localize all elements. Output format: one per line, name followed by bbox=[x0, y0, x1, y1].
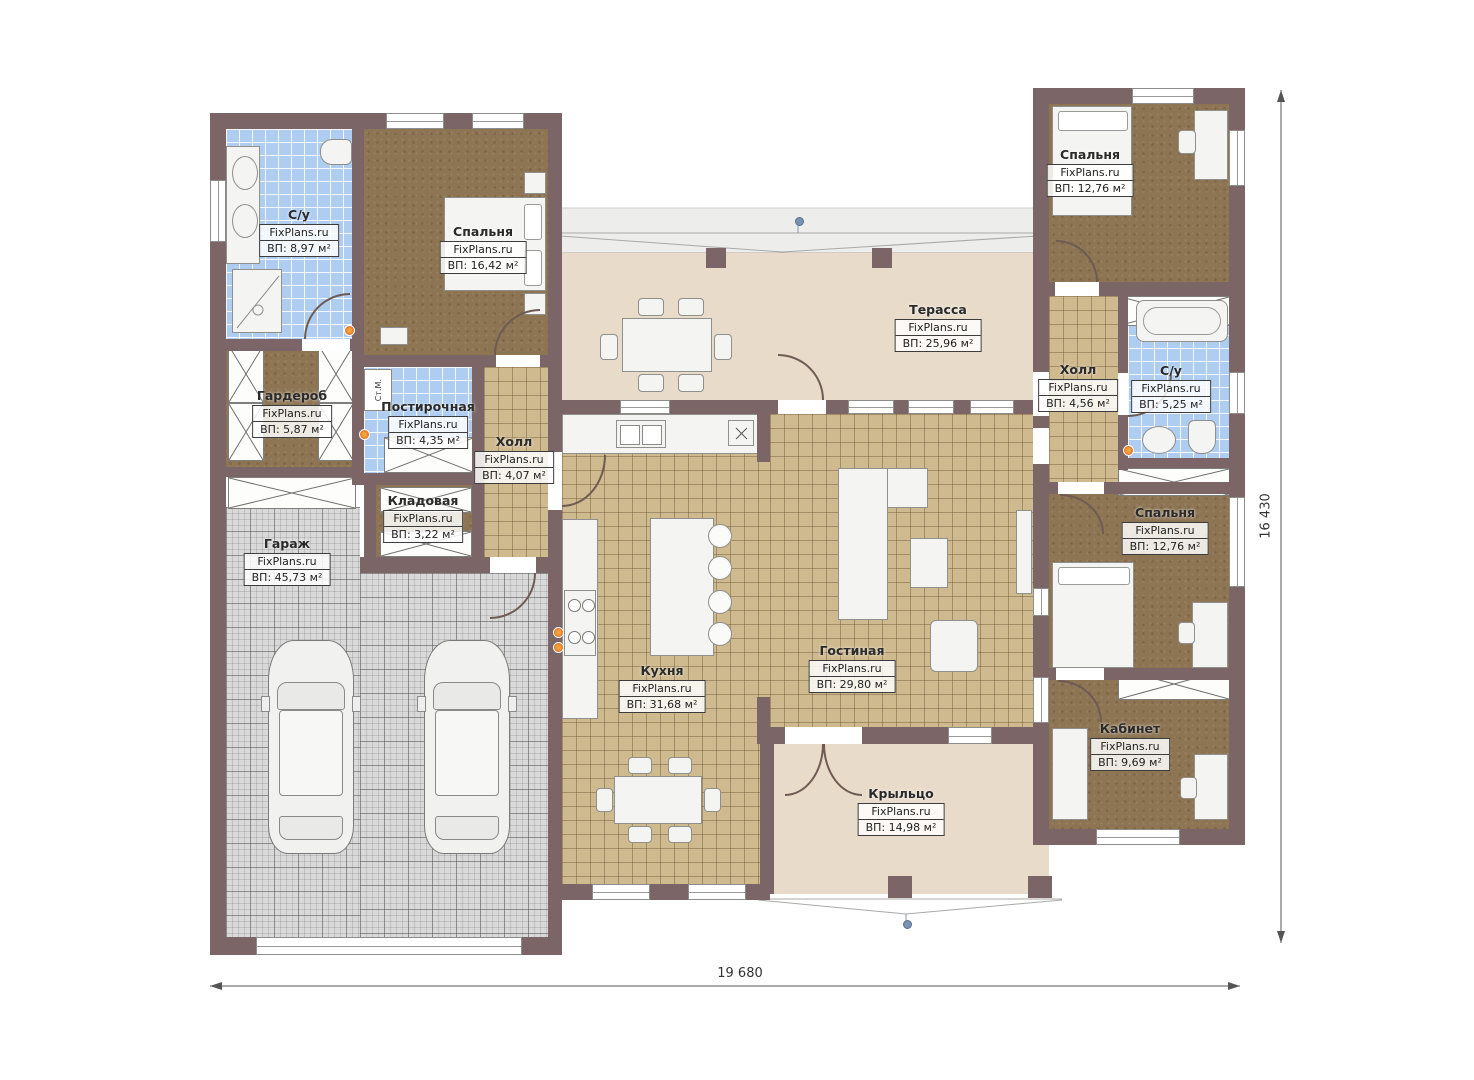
watermark: FixPlans.ru bbox=[384, 511, 462, 527]
room-name: Гараж bbox=[244, 536, 331, 551]
desk bbox=[1194, 110, 1228, 180]
window bbox=[1229, 130, 1245, 186]
desk bbox=[1192, 602, 1228, 668]
room-name: Гостиная bbox=[809, 643, 896, 658]
room-name: Кабинет bbox=[1090, 721, 1170, 736]
bar-stool bbox=[708, 556, 732, 580]
bar-stool bbox=[708, 524, 732, 548]
closet-shelving bbox=[228, 477, 356, 509]
door-opening bbox=[490, 557, 536, 573]
wall-light bbox=[359, 429, 370, 440]
wall bbox=[352, 129, 364, 351]
watermark: FixPlans.ru bbox=[1091, 739, 1169, 755]
watermark: FixPlans.ru bbox=[260, 225, 338, 241]
door-opening bbox=[778, 400, 826, 414]
dresser bbox=[380, 327, 408, 345]
room-name: Кладовая bbox=[383, 493, 463, 508]
room-area: ВП: 9,69 м² bbox=[1091, 755, 1169, 770]
room-area: ВП: 16,42 м² bbox=[441, 258, 526, 273]
wall bbox=[760, 744, 774, 894]
room-label-office: Кабинет FixPlans.ruВП: 9,69 м² bbox=[1090, 721, 1170, 771]
room-area: ВП: 14,98 м² bbox=[859, 820, 944, 835]
chair bbox=[638, 298, 664, 316]
watermark: FixPlans.ru bbox=[1123, 523, 1208, 539]
pillow bbox=[524, 250, 542, 286]
room-label-porch: Крыльцо FixPlans.ruВП: 14,98 м² bbox=[858, 786, 945, 836]
chair bbox=[678, 374, 704, 392]
room-area: ВП: 4,56 м² bbox=[1039, 396, 1117, 411]
chair bbox=[1178, 622, 1195, 644]
room-label-wardrobe: Гардероб FixPlans.ruВП: 5,87 м² bbox=[252, 388, 332, 438]
door-opening bbox=[1033, 428, 1049, 464]
bathtub bbox=[1136, 300, 1228, 342]
bar-stool bbox=[708, 590, 732, 614]
watermark: FixPlans.ru bbox=[389, 417, 467, 433]
room-label-hall-right: Холл FixPlans.ruВП: 4,56 м² bbox=[1038, 362, 1118, 412]
window bbox=[908, 400, 954, 414]
window bbox=[970, 400, 1014, 414]
wall-light bbox=[553, 627, 564, 638]
watermark: FixPlans.ru bbox=[1132, 381, 1210, 397]
window bbox=[592, 884, 650, 900]
roof-post bbox=[872, 248, 892, 268]
dining-table bbox=[614, 776, 702, 824]
window bbox=[1033, 588, 1049, 616]
room-label-laundry: Постирочная FixPlans.ruВП: 4,35 м² bbox=[381, 399, 475, 449]
room-area: ВП: 5,25 м² bbox=[1132, 397, 1210, 412]
pillow bbox=[1058, 567, 1130, 585]
room-label-living-room: Гостиная FixPlans.ruВП: 29,80 м² bbox=[809, 643, 896, 693]
chair bbox=[714, 334, 732, 360]
watermark: FixPlans.ru bbox=[896, 320, 981, 336]
dimension-width-label: 19 680 bbox=[717, 966, 763, 981]
wall-light bbox=[344, 325, 355, 336]
room-name: Спальня bbox=[1122, 505, 1209, 520]
room-name: Постирочная bbox=[381, 399, 475, 414]
window bbox=[1132, 88, 1194, 104]
wall bbox=[1229, 88, 1245, 845]
chair bbox=[628, 826, 652, 843]
sink bbox=[1142, 426, 1176, 454]
wall bbox=[1033, 88, 1049, 845]
window bbox=[688, 884, 746, 900]
window bbox=[848, 400, 894, 414]
door-opening bbox=[496, 355, 540, 367]
chair bbox=[1180, 777, 1197, 799]
porch-column bbox=[888, 876, 912, 898]
room-name: Спальня bbox=[440, 224, 527, 239]
room-area: ВП: 45,73 м² bbox=[245, 570, 330, 585]
room-label-bathroom-right: С/у FixPlans.ruВП: 5,25 м² bbox=[1131, 363, 1211, 413]
wall bbox=[364, 473, 472, 485]
watermark: FixPlans.ru bbox=[810, 661, 895, 677]
door-opening bbox=[1118, 373, 1128, 415]
window bbox=[1229, 497, 1245, 587]
shower bbox=[232, 269, 282, 333]
window bbox=[1033, 677, 1049, 723]
door-opening bbox=[1058, 482, 1104, 494]
watermark: FixPlans.ru bbox=[620, 681, 705, 697]
room-label-terrace: Терасса FixPlans.ruВП: 25,96 м² bbox=[895, 302, 982, 352]
room-area: ВП: 12,76 м² bbox=[1123, 539, 1208, 554]
chair bbox=[1178, 130, 1196, 154]
door-opening bbox=[785, 727, 862, 744]
room-label-bedroom-left: Спальня FixPlans.ruВП: 16,42 м² bbox=[440, 224, 527, 274]
armchair bbox=[930, 620, 978, 672]
chair bbox=[600, 334, 618, 360]
room-area: ВП: 4,07 м² bbox=[475, 468, 553, 483]
sink bbox=[232, 204, 258, 238]
desk bbox=[1194, 754, 1228, 820]
chair bbox=[628, 757, 652, 774]
room-name: Спальня bbox=[1047, 147, 1134, 162]
sink bbox=[232, 156, 258, 190]
room-label-bedroom-right: Спальня FixPlans.ruВП: 12,76 м² bbox=[1122, 505, 1209, 555]
room-area: ВП: 31,68 м² bbox=[620, 697, 705, 712]
chair bbox=[668, 826, 692, 843]
door-opening bbox=[1056, 668, 1104, 680]
room-area: ВП: 4,35 м² bbox=[389, 433, 467, 448]
chair bbox=[668, 757, 692, 774]
window bbox=[1229, 372, 1245, 414]
bar-stool bbox=[708, 622, 732, 646]
ridge-marker bbox=[903, 920, 912, 929]
room-name: С/у bbox=[1131, 363, 1211, 378]
watermark: FixPlans.ru bbox=[253, 406, 331, 422]
porch-column bbox=[1028, 876, 1052, 898]
room-area: ВП: 12,76 м² bbox=[1048, 181, 1133, 196]
room-label-pantry: Кладовая FixPlans.ruВП: 3,22 м² bbox=[383, 493, 463, 543]
toilet bbox=[320, 139, 352, 165]
room-area: ВП: 29,80 м² bbox=[810, 677, 895, 692]
sofa bbox=[838, 468, 888, 620]
coffee-table bbox=[910, 538, 948, 588]
watermark: FixPlans.ru bbox=[441, 242, 526, 258]
wall bbox=[352, 351, 364, 485]
room-name: Крыльцо bbox=[858, 786, 945, 801]
dimension-height-label: 16 430 bbox=[1259, 493, 1274, 539]
room-label-hall-center: Холл FixPlans.ruВП: 4,07 м² bbox=[474, 434, 554, 484]
room-area: ВП: 8,97 м² bbox=[260, 241, 338, 256]
window bbox=[948, 727, 992, 744]
pillow bbox=[1058, 111, 1128, 131]
floor-plan-canvas: Ст.М. bbox=[0, 0, 1474, 1080]
nightstand bbox=[524, 172, 546, 194]
window bbox=[472, 113, 524, 129]
stove bbox=[564, 590, 596, 656]
door-opening bbox=[1055, 282, 1099, 296]
chair bbox=[678, 298, 704, 316]
room-label-bedroom-top-right: Спальня FixPlans.ruВП: 12,76 м² bbox=[1047, 147, 1134, 197]
wall bbox=[226, 467, 355, 477]
sofa bbox=[1052, 728, 1088, 820]
wall-light bbox=[553, 642, 564, 653]
watermark: FixPlans.ru bbox=[475, 452, 553, 468]
chair bbox=[704, 788, 721, 812]
door-opening bbox=[302, 339, 350, 351]
wall bbox=[757, 414, 770, 462]
washing-machine-label: Ст.М. bbox=[374, 379, 383, 401]
chair bbox=[638, 374, 664, 392]
roof-post bbox=[706, 248, 726, 268]
room-name: Холл bbox=[1038, 362, 1118, 377]
vent-icon bbox=[728, 420, 754, 446]
window bbox=[386, 113, 444, 129]
toilet bbox=[1188, 420, 1216, 454]
room-name: Кухня bbox=[619, 663, 706, 678]
garage-door bbox=[256, 937, 522, 955]
room-name: Терасса bbox=[895, 302, 982, 317]
car bbox=[424, 640, 510, 854]
window bbox=[620, 400, 670, 414]
room-area: ВП: 3,22 м² bbox=[384, 527, 462, 542]
ridge-marker bbox=[795, 217, 804, 226]
room-name: Гардероб bbox=[252, 388, 332, 403]
room-label-kitchen: Кухня FixPlans.ruВП: 31,68 м² bbox=[619, 663, 706, 713]
room-name: Холл bbox=[474, 434, 554, 449]
car bbox=[268, 640, 354, 854]
window bbox=[210, 180, 226, 242]
watermark: FixPlans.ru bbox=[1048, 165, 1133, 181]
kitchen-sink bbox=[616, 420, 666, 448]
watermark: FixPlans.ru bbox=[245, 554, 330, 570]
room-area: ВП: 5,87 м² bbox=[253, 422, 331, 437]
watermark: FixPlans.ru bbox=[859, 804, 944, 820]
window bbox=[1096, 829, 1180, 845]
chair bbox=[596, 788, 613, 812]
room-label-bathroom-left: С/у FixPlans.ruВП: 8,97 м² bbox=[259, 207, 339, 257]
kitchen-island bbox=[650, 518, 714, 656]
wall bbox=[548, 113, 562, 937]
room-area: ВП: 25,96 м² bbox=[896, 336, 981, 351]
tv-console bbox=[1016, 510, 1032, 594]
pillow bbox=[524, 204, 542, 240]
room-name: С/у bbox=[259, 207, 339, 222]
room-label-garage: Гараж FixPlans.ruВП: 45,73 м² bbox=[244, 536, 331, 586]
wall-light bbox=[1123, 445, 1134, 456]
terrace-table bbox=[622, 318, 712, 372]
watermark: FixPlans.ru bbox=[1039, 380, 1117, 396]
wall bbox=[1118, 458, 1229, 468]
